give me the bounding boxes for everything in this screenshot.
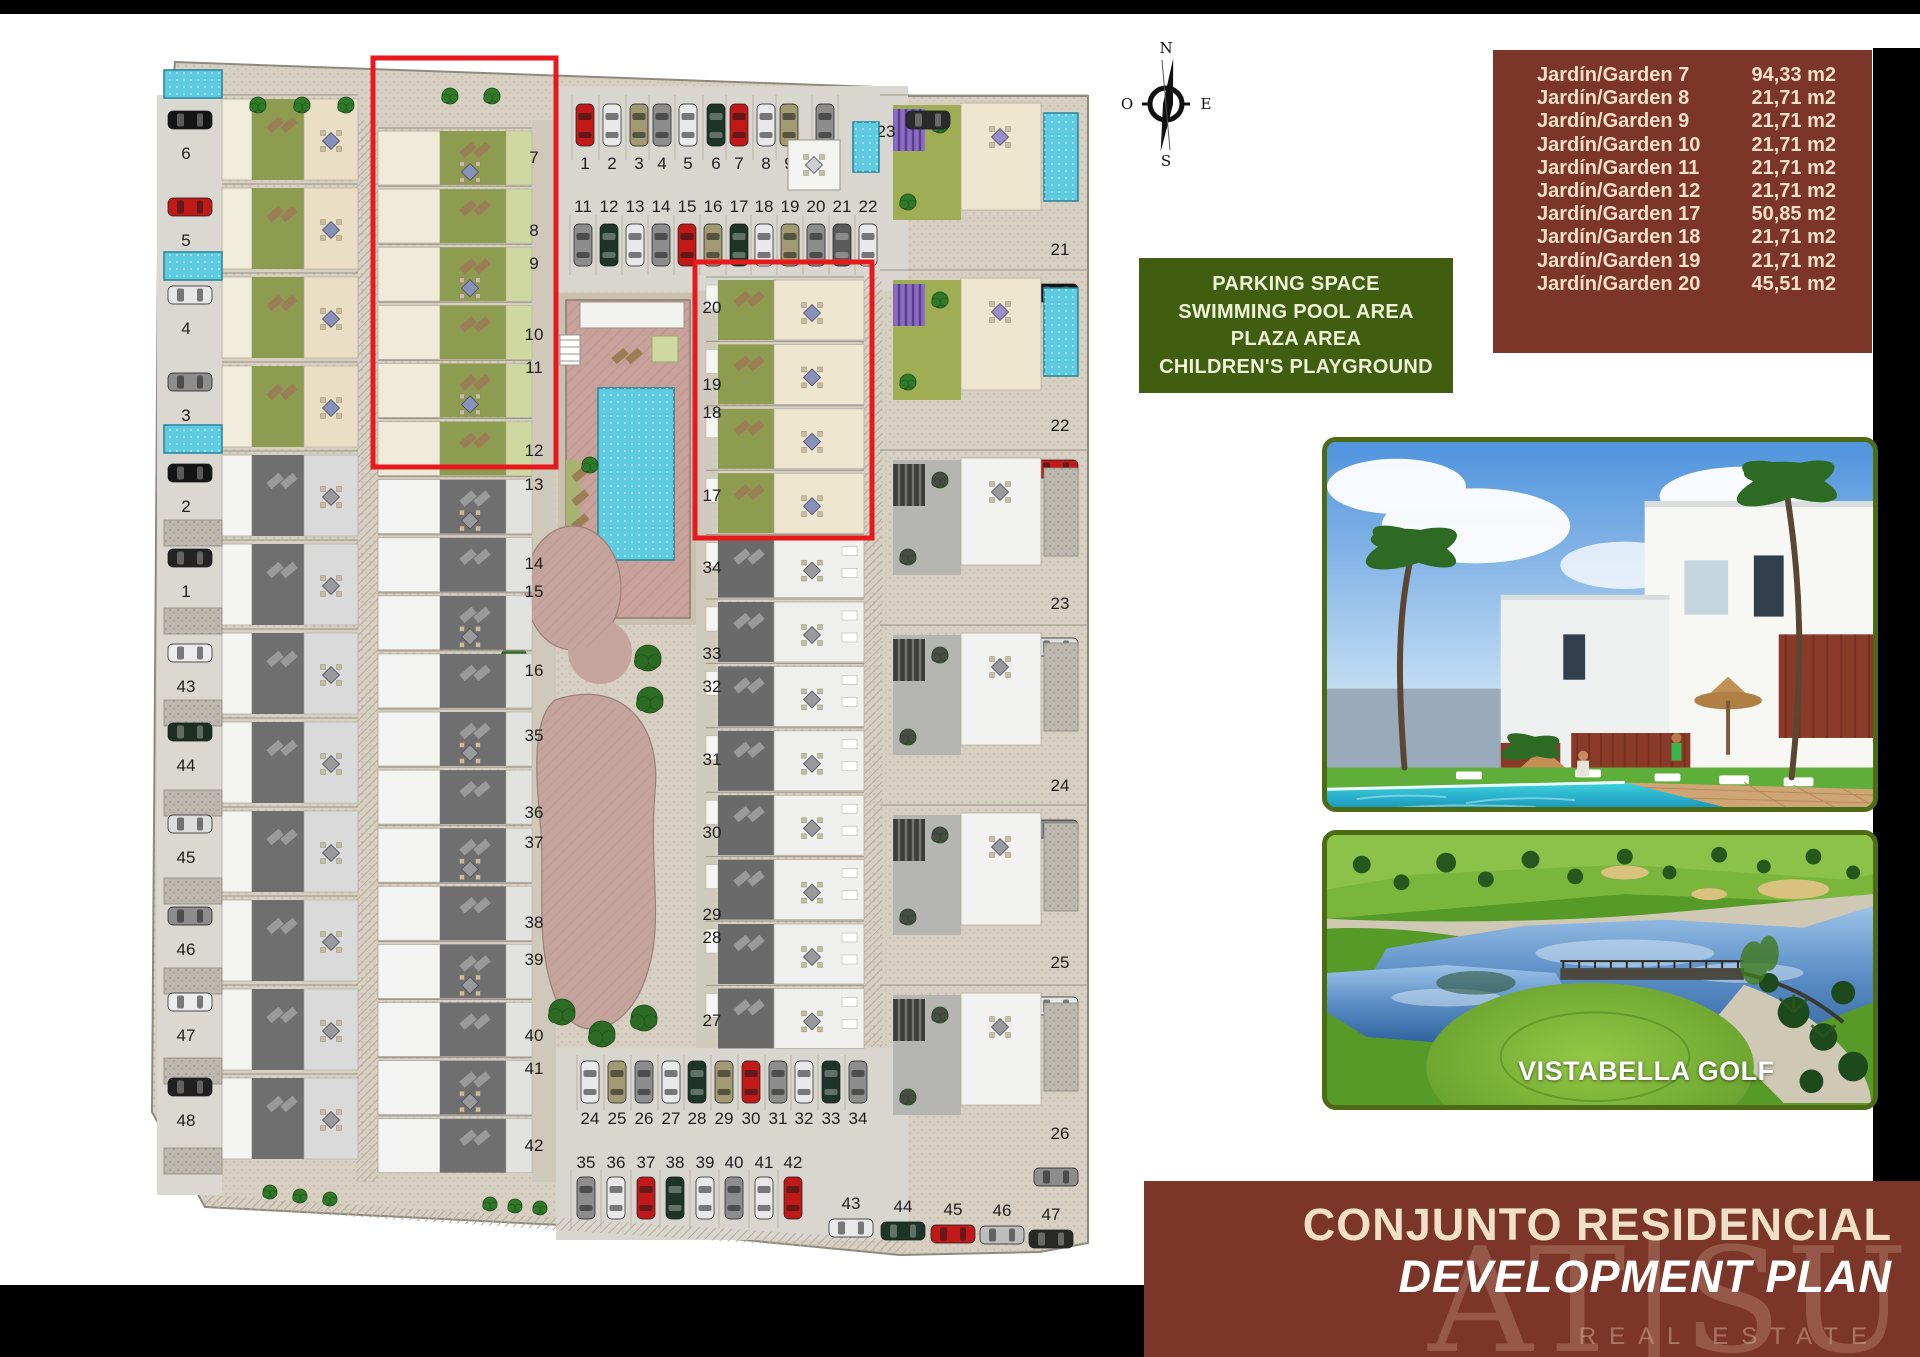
plan-number: 10 bbox=[525, 325, 544, 344]
plan-number: 31 bbox=[703, 750, 722, 769]
patio-table-icon bbox=[990, 837, 1011, 858]
plan-number: 28 bbox=[703, 928, 722, 947]
plan-number: 32 bbox=[795, 1109, 814, 1128]
plan-number: 29 bbox=[703, 905, 722, 924]
plan-number: 35 bbox=[525, 726, 544, 745]
plan-number: 15 bbox=[678, 197, 697, 216]
tree-icon bbox=[634, 645, 661, 671]
plan-number: 11 bbox=[525, 358, 543, 377]
plan-number: 43 bbox=[842, 1194, 861, 1213]
car-icon bbox=[574, 224, 592, 266]
plan-number: 47 bbox=[1042, 1205, 1061, 1224]
patio-table-icon bbox=[990, 1017, 1011, 1038]
garden-area: 21,71 m2 bbox=[1751, 134, 1836, 157]
car-icon bbox=[662, 1061, 680, 1103]
plan-number: 29 bbox=[715, 1109, 734, 1128]
garden-table-row: Jardín/Garden 2045,51 m2 bbox=[1537, 273, 1836, 296]
plan-number: 27 bbox=[703, 1011, 722, 1030]
car-icon bbox=[1029, 1230, 1073, 1248]
patio-table-icon bbox=[802, 947, 823, 968]
plan-number: 6 bbox=[181, 144, 190, 163]
tree-icon bbox=[483, 1197, 497, 1211]
patio-table-icon bbox=[802, 689, 823, 710]
plan-number: 3 bbox=[634, 154, 643, 173]
plan-number: 27 bbox=[662, 1109, 681, 1128]
patio-table-icon bbox=[460, 510, 481, 531]
garden-area: 21,71 m2 bbox=[1751, 87, 1836, 110]
car-icon bbox=[168, 1078, 212, 1096]
garden-area: 21,71 m2 bbox=[1751, 226, 1836, 249]
patio-table-icon bbox=[802, 431, 823, 452]
plan-number: 4 bbox=[657, 154, 666, 173]
development-title-box: AT|SU CONJUNTO RESIDENCIAL DEVELOPMENT P… bbox=[1144, 1181, 1920, 1357]
plan-number: 45 bbox=[177, 848, 196, 867]
plan-number: 34 bbox=[849, 1109, 868, 1128]
car-icon bbox=[626, 224, 644, 266]
plan-number: 19 bbox=[781, 197, 800, 216]
plan-number: 40 bbox=[725, 1153, 744, 1172]
plan-number: 46 bbox=[993, 1201, 1012, 1220]
car-icon bbox=[168, 464, 212, 482]
garden-name: Jardín/Garden 19 bbox=[1537, 250, 1700, 273]
tree-icon bbox=[900, 1089, 916, 1105]
plan-number: 28 bbox=[688, 1109, 707, 1128]
patio-table-icon bbox=[802, 367, 823, 388]
plan-number: 17 bbox=[703, 486, 722, 505]
plan-number: 36 bbox=[607, 1153, 626, 1172]
plan-number: 33 bbox=[703, 644, 722, 663]
car-icon bbox=[168, 907, 212, 925]
garden-area: 21,71 m2 bbox=[1751, 110, 1836, 133]
car-icon bbox=[653, 104, 671, 146]
pool-photo-illustration bbox=[1327, 442, 1873, 807]
patio-table-icon bbox=[321, 131, 342, 152]
garden-name: Jardín/Garden 8 bbox=[1537, 87, 1689, 110]
car-icon bbox=[784, 1177, 802, 1219]
car-icon bbox=[637, 1177, 655, 1219]
tree-icon bbox=[323, 1192, 337, 1206]
plan-number: 3 bbox=[181, 406, 190, 425]
patio-table-icon bbox=[990, 302, 1011, 323]
poster-canvas: 6543214344454647487891011121314151635363… bbox=[0, 0, 1920, 1357]
pool-pavilion bbox=[580, 302, 684, 328]
car-icon bbox=[168, 198, 212, 216]
legend-line: SWIMMING POOL AREA bbox=[1139, 299, 1453, 327]
car-icon bbox=[577, 1177, 595, 1219]
tree-icon bbox=[900, 194, 916, 210]
tree-icon bbox=[582, 457, 598, 473]
plan-number: 26 bbox=[635, 1109, 654, 1128]
garden-name: Jardín/Garden 17 bbox=[1537, 203, 1700, 226]
garden-name: Jardín/Garden 20 bbox=[1537, 273, 1700, 296]
patio-table-icon bbox=[321, 1021, 342, 1042]
patio-table-icon bbox=[321, 1110, 342, 1131]
plan-number: 2 bbox=[607, 154, 616, 173]
patio-table-icon bbox=[460, 394, 481, 415]
patio-table-icon bbox=[804, 155, 825, 176]
garden-area: 45,51 m2 bbox=[1751, 273, 1836, 296]
patio-table-icon bbox=[321, 843, 342, 864]
plan-number: 12 bbox=[525, 441, 544, 460]
plan-number: 42 bbox=[525, 1136, 544, 1155]
plan-number: 37 bbox=[525, 833, 544, 852]
tree-icon bbox=[548, 999, 575, 1025]
car-icon bbox=[881, 1222, 925, 1240]
compass-letter: N bbox=[1159, 40, 1172, 57]
car-icon bbox=[168, 993, 212, 1011]
tree-icon bbox=[932, 292, 948, 308]
car-icon bbox=[757, 104, 775, 146]
patio-table-icon bbox=[321, 487, 342, 508]
garden-name: Jardín/Garden 18 bbox=[1537, 226, 1700, 249]
patio-table-icon bbox=[460, 278, 481, 299]
plan-number: 31 bbox=[769, 1109, 788, 1128]
plan-number: 22 bbox=[1051, 416, 1070, 435]
patio-table-icon bbox=[321, 220, 342, 241]
plan-number: 38 bbox=[666, 1153, 685, 1172]
tree-icon bbox=[932, 827, 948, 843]
legend-line: CHILDREN'S PLAYGROUND bbox=[1139, 354, 1453, 382]
tree-icon bbox=[900, 729, 916, 745]
plan-number: 14 bbox=[652, 197, 671, 216]
patio-table-icon bbox=[460, 743, 481, 764]
patio-table-icon bbox=[460, 859, 481, 880]
patio-table-icon bbox=[321, 398, 342, 419]
plan-number: 36 bbox=[525, 803, 544, 822]
car-icon bbox=[696, 1177, 714, 1219]
plan-number: 9 bbox=[529, 254, 538, 273]
plan-number: 44 bbox=[177, 756, 196, 775]
patio-table-icon bbox=[460, 975, 481, 996]
pergola-icon bbox=[893, 464, 925, 506]
pergola-icon bbox=[893, 819, 925, 861]
plan-number: 8 bbox=[529, 221, 538, 240]
garden-table-row: Jardín/Garden 821,71 m2 bbox=[1537, 87, 1836, 110]
plan-number: 35 bbox=[577, 1153, 596, 1172]
tree-icon bbox=[442, 88, 458, 104]
title-spanish: CONJUNTO RESIDENCIAL bbox=[1303, 1199, 1892, 1251]
car-icon bbox=[795, 1061, 813, 1103]
garden-area: 94,33 m2 bbox=[1751, 64, 1836, 87]
pergola-icon bbox=[893, 284, 925, 326]
plan-number: 37 bbox=[637, 1153, 656, 1172]
plan-number: 48 bbox=[177, 1111, 196, 1130]
amenities-legend: PARKING SPACESWIMMING POOL AREAPLAZA ARE… bbox=[1139, 258, 1453, 393]
patio-table-icon bbox=[802, 753, 823, 774]
garden-area-table: Jardín/Garden 794,33 m2Jardín/Garden 821… bbox=[1493, 50, 1872, 353]
car-icon bbox=[849, 1061, 867, 1103]
plan-number: 5 bbox=[683, 154, 692, 173]
title-english: DEVELOPMENT PLAN bbox=[1398, 1251, 1892, 1303]
plan-number: 21 bbox=[833, 197, 852, 216]
car-icon bbox=[652, 224, 670, 266]
tree-icon bbox=[932, 1007, 948, 1023]
car-icon bbox=[707, 104, 725, 146]
garden-table-row: Jardín/Garden 1121,71 m2 bbox=[1537, 157, 1836, 180]
plan-number: 12 bbox=[600, 197, 619, 216]
frame-right-bar bbox=[1873, 48, 1920, 1357]
car-icon bbox=[168, 286, 212, 304]
car-icon bbox=[168, 723, 212, 741]
plan-number: 45 bbox=[944, 1200, 963, 1219]
garden-name: Jardín/Garden 9 bbox=[1537, 110, 1689, 133]
car-icon bbox=[906, 111, 950, 129]
tree-icon bbox=[630, 1005, 657, 1031]
patio-table-icon bbox=[460, 626, 481, 647]
plan-number: 5 bbox=[181, 231, 190, 250]
plan-number: 23 bbox=[1051, 594, 1070, 613]
tree-icon bbox=[932, 647, 948, 663]
plan-number: 16 bbox=[704, 197, 723, 216]
tree-icon bbox=[900, 374, 916, 390]
garden-area: 21,71 m2 bbox=[1751, 250, 1836, 273]
plan-number: 34 bbox=[703, 558, 722, 577]
patio-table-icon bbox=[990, 482, 1011, 503]
legend-line: PARKING SPACE bbox=[1139, 271, 1453, 299]
plan-number: 6 bbox=[711, 154, 720, 173]
plan-number: 24 bbox=[581, 1109, 600, 1128]
tree-icon bbox=[250, 97, 266, 113]
plan-number: 30 bbox=[703, 823, 722, 842]
plan-number: 25 bbox=[1051, 953, 1070, 972]
golf-caption: VISTABELLA GOLF bbox=[1518, 1056, 1775, 1087]
tree-icon bbox=[338, 97, 354, 113]
frame-top-bar bbox=[0, 0, 1920, 14]
plan-number: 38 bbox=[525, 913, 544, 932]
garden-table-row: Jardín/Garden 794,33 m2 bbox=[1537, 64, 1836, 87]
car-icon bbox=[168, 549, 212, 567]
car-icon bbox=[666, 1177, 684, 1219]
plan-number: 14 bbox=[525, 554, 544, 573]
car-icon bbox=[822, 1061, 840, 1103]
plan-number: 1 bbox=[580, 154, 589, 173]
car-icon bbox=[679, 104, 697, 146]
plan-number: 17 bbox=[730, 197, 749, 216]
plan-number: 18 bbox=[755, 197, 774, 216]
tree-icon bbox=[508, 1199, 522, 1213]
garden-table-row: Jardín/Garden 921,71 m2 bbox=[1537, 110, 1836, 133]
car-icon bbox=[730, 104, 748, 146]
plan-number: 7 bbox=[734, 154, 743, 173]
car-icon bbox=[168, 644, 212, 662]
tree-icon bbox=[293, 1189, 307, 1203]
plan-number: 41 bbox=[525, 1059, 544, 1078]
patio-table-icon bbox=[802, 625, 823, 646]
car-icon bbox=[576, 104, 594, 146]
plan-number: 2 bbox=[181, 497, 190, 516]
garden-area: 21,71 m2 bbox=[1751, 180, 1836, 203]
tree-icon bbox=[263, 1185, 277, 1199]
plan-number: 43 bbox=[177, 677, 196, 696]
plan-number: 11 bbox=[574, 197, 592, 216]
pergola-icon bbox=[893, 639, 925, 681]
tree-icon bbox=[484, 88, 500, 104]
tree-icon bbox=[932, 472, 948, 488]
tree-icon bbox=[294, 97, 310, 113]
patio-table-icon bbox=[802, 560, 823, 581]
patio-table-icon bbox=[802, 303, 823, 324]
car-icon bbox=[980, 1226, 1024, 1244]
plan-number: 26 bbox=[1051, 1124, 1070, 1143]
patio-table-icon bbox=[802, 818, 823, 839]
plan-number: 8 bbox=[761, 154, 770, 173]
garden-area: 21,71 m2 bbox=[1751, 157, 1836, 180]
plan-number: 33 bbox=[822, 1109, 841, 1128]
car-icon bbox=[603, 104, 621, 146]
car-icon bbox=[630, 104, 648, 146]
car-icon bbox=[168, 111, 212, 129]
patio-table-icon bbox=[802, 882, 823, 903]
plan-number: 20 bbox=[807, 197, 826, 216]
brand-watermark-subtitle: REAL ESTATE bbox=[1579, 1323, 1880, 1351]
plan-number: 16 bbox=[525, 661, 544, 680]
garden-table-row: Jardín/Garden 1921,71 m2 bbox=[1537, 250, 1836, 273]
plan-number: 44 bbox=[894, 1197, 913, 1216]
garden-name: Jardín/Garden 7 bbox=[1537, 64, 1689, 87]
patio-table-icon bbox=[990, 127, 1011, 148]
golf-photo: VISTABELLA GOLF bbox=[1322, 830, 1878, 1110]
patio-table-icon bbox=[321, 932, 342, 953]
tree-icon bbox=[636, 687, 663, 713]
compass-letter: O bbox=[1121, 95, 1133, 113]
car-icon bbox=[715, 1061, 733, 1103]
patio-table-icon bbox=[460, 1091, 481, 1112]
garden-table-row: Jardín/Garden 1750,85 m2 bbox=[1537, 203, 1836, 226]
pool-photo bbox=[1322, 437, 1878, 812]
patio-table-icon bbox=[321, 665, 342, 686]
plan-number: 1 bbox=[181, 582, 190, 601]
car-icon bbox=[607, 1177, 625, 1219]
tree-icon bbox=[900, 909, 916, 925]
plan-number: 24 bbox=[1051, 776, 1070, 795]
car-icon bbox=[1034, 1168, 1078, 1186]
plan-number: 39 bbox=[696, 1153, 715, 1172]
plan-number: 25 bbox=[608, 1109, 627, 1128]
car-icon bbox=[608, 1061, 626, 1103]
garden-area: 50,85 m2 bbox=[1751, 203, 1836, 226]
plan-number: 22 bbox=[859, 197, 878, 216]
pergola-icon bbox=[893, 999, 925, 1041]
car-icon bbox=[168, 815, 212, 833]
car-icon bbox=[931, 1225, 975, 1243]
tree-icon bbox=[533, 1201, 547, 1215]
car-icon bbox=[755, 1177, 773, 1219]
garden-name: Jardín/Garden 11 bbox=[1537, 157, 1699, 180]
compass-letter: S bbox=[1161, 152, 1171, 170]
garden-table-row: Jardín/Garden 1821,71 m2 bbox=[1537, 226, 1836, 249]
plan-number: 18 bbox=[703, 403, 722, 422]
car-icon bbox=[635, 1061, 653, 1103]
garden-name: Jardín/Garden 12 bbox=[1537, 180, 1700, 203]
plan-number: 4 bbox=[181, 319, 190, 338]
plan-number: 39 bbox=[525, 950, 544, 969]
car-icon bbox=[168, 373, 212, 391]
garden-table-row: Jardín/Garden 1021,71 m2 bbox=[1537, 134, 1836, 157]
patio-table-icon bbox=[321, 754, 342, 775]
plan-number: 40 bbox=[525, 1026, 544, 1045]
plan-number: 30 bbox=[742, 1109, 761, 1128]
tree-icon bbox=[900, 549, 916, 565]
patio-table-icon bbox=[321, 576, 342, 597]
plan-number: 21 bbox=[1051, 240, 1070, 259]
car-icon bbox=[581, 1061, 599, 1103]
patio-table-icon bbox=[321, 309, 342, 330]
patio-table-icon bbox=[460, 162, 481, 183]
legend-line: PLAZA AREA bbox=[1139, 326, 1453, 354]
compass-letter: E bbox=[1201, 95, 1212, 113]
plan-number: 32 bbox=[703, 677, 722, 696]
car-icon bbox=[769, 1061, 787, 1103]
plan-number: 19 bbox=[703, 375, 722, 394]
car-icon bbox=[742, 1061, 760, 1103]
plan-number: 15 bbox=[525, 582, 544, 601]
plan-number: 47 bbox=[177, 1026, 196, 1045]
car-icon bbox=[600, 224, 618, 266]
tree-icon bbox=[588, 1021, 615, 1047]
compass-rose-icon: NSEO bbox=[1118, 40, 1218, 170]
plan-number: 13 bbox=[525, 475, 544, 494]
plan-number: 46 bbox=[177, 940, 196, 959]
patio-table-icon bbox=[990, 657, 1011, 678]
plan-number: 7 bbox=[529, 148, 538, 167]
car-icon bbox=[829, 1219, 873, 1237]
plan-number: 20 bbox=[703, 298, 722, 317]
plan-number: 13 bbox=[626, 197, 645, 216]
patio-table-icon bbox=[802, 496, 823, 517]
car-icon bbox=[688, 1061, 706, 1103]
patio-table-icon bbox=[802, 1011, 823, 1032]
car-icon bbox=[725, 1177, 743, 1219]
garden-table-row: Jardín/Garden 1221,71 m2 bbox=[1537, 180, 1836, 203]
garden-name: Jardín/Garden 10 bbox=[1537, 134, 1700, 157]
plan-number: 41 bbox=[755, 1153, 774, 1172]
plan-number: 42 bbox=[784, 1153, 803, 1172]
